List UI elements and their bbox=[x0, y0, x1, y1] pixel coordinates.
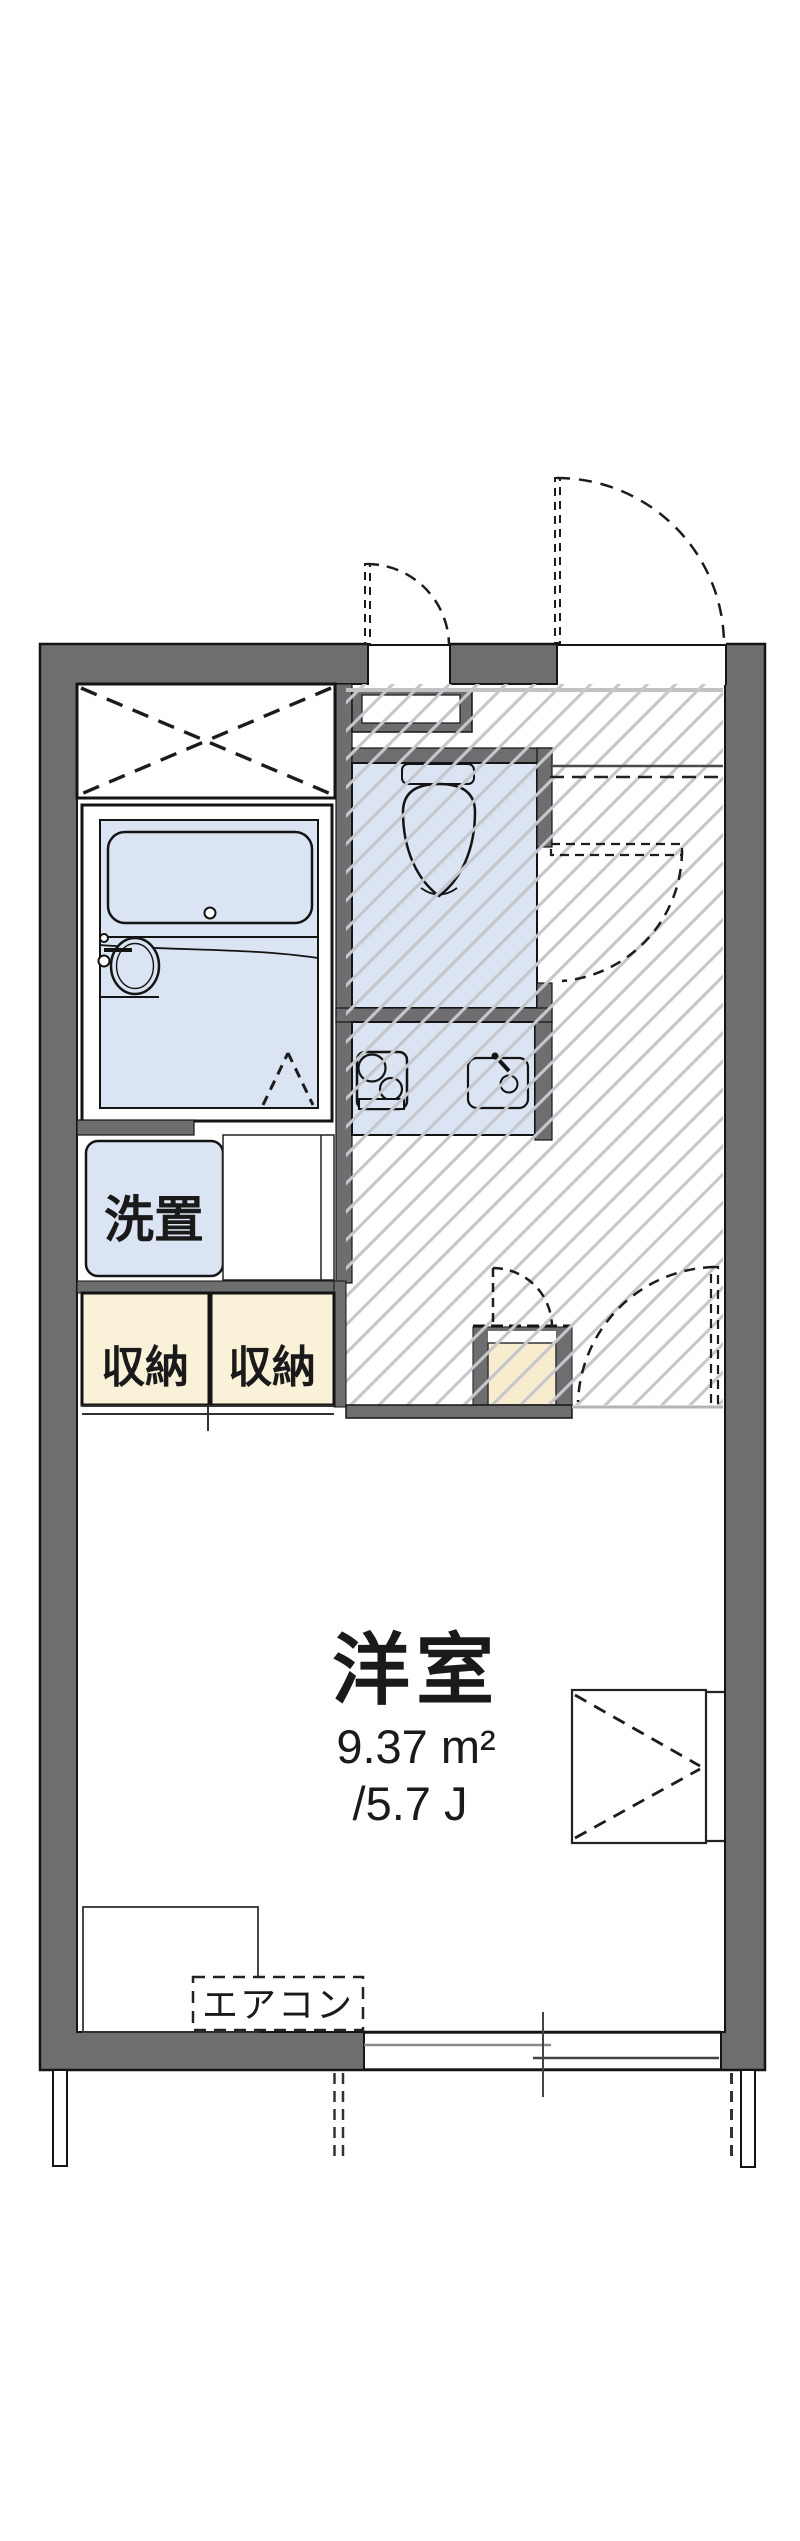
main-room: 洋室 9.37 m² /5.7 J bbox=[332, 1626, 500, 1830]
floor-plan-page: 洗置 収納 収納 洋室 9.37 m² /5.7 J エ bbox=[0, 0, 800, 2541]
storage-label-right: 収納 bbox=[228, 1343, 316, 1392]
main-entrance-opening bbox=[557, 641, 726, 685]
main-room-label: 洋室 bbox=[332, 1626, 500, 1714]
entry-door-opening bbox=[368, 641, 450, 685]
bathtub-drain-icon bbox=[205, 908, 216, 919]
foundation-posts bbox=[53, 2070, 755, 2167]
hallway-hatch-area bbox=[346, 684, 723, 1405]
laundry-counter-box bbox=[223, 1135, 334, 1280]
air-conditioner: エアコン bbox=[193, 1977, 363, 2030]
air-conditioner-label: エアコン bbox=[202, 1984, 354, 2025]
storage-closets: 収納 収納 bbox=[77, 1281, 346, 1431]
unit-bath bbox=[82, 805, 332, 1121]
bay-window-icon bbox=[572, 1690, 724, 1843]
bottom-window-icon bbox=[364, 2012, 721, 2097]
main-entry-door-swing-icon bbox=[555, 478, 724, 645]
laundry-space: 洗置 bbox=[86, 1141, 223, 1276]
storage-label-left: 収納 bbox=[101, 1343, 189, 1392]
wall-stub bbox=[77, 1120, 194, 1135]
main-room-area-tatami: /5.7 J bbox=[353, 1777, 468, 1830]
main-room-area-m2: 9.37 m² bbox=[336, 1720, 495, 1773]
room-entry-wall bbox=[346, 1405, 723, 1418]
laundry-label: 洗置 bbox=[104, 1192, 204, 1248]
small-entry-door-swing-icon bbox=[365, 564, 449, 645]
closet-cross-box bbox=[77, 684, 335, 798]
floor-plan-drawing: 洗置 収納 収納 洋室 9.37 m² /5.7 J エ bbox=[0, 0, 800, 2541]
